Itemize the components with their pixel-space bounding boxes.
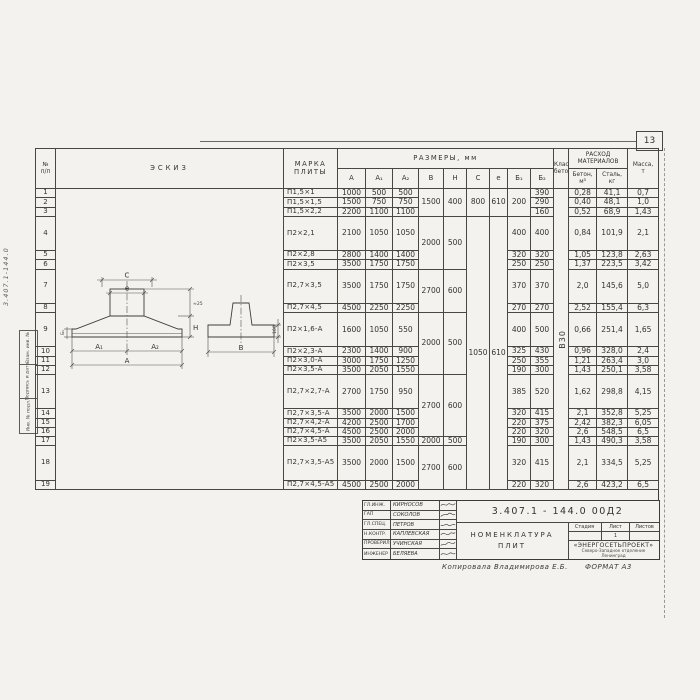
cell-num: 10 [36,347,56,356]
signature-mark [440,511,456,520]
cell-num: 1 [36,189,56,198]
cell-b2: 390 [531,189,554,198]
cell-e: 610 [490,216,508,489]
cell-a: 3500 [338,365,366,374]
cell-a: 4500 [338,427,366,436]
cell-steel: 68,9 [597,207,628,216]
signer-name: СОКОЛОВ [391,511,440,520]
col-header-c: С [467,169,490,189]
cell-a: 2700 [338,375,366,409]
cell-a: 1600 [338,313,366,347]
cell-a2: 1250 [393,356,419,365]
cell-b1: 320 [508,409,531,418]
dim-label-a1: А₁ [95,343,103,351]
cell-a2: 750 [393,198,419,207]
cell-b2: 430 [531,347,554,356]
cell-mark: П2,7×2,7-А [284,375,338,409]
cell-concrete: 0,96 [569,347,597,356]
cell-mark: П2×2,8 [284,251,338,260]
cell-b: 2700 [419,446,444,490]
cell-steel: 352,8 [597,409,628,418]
cell-a2: 1750 [393,260,419,269]
cell-b1: 190 [508,437,531,446]
signature-mark [440,530,456,539]
cell-a2: 1100 [393,207,419,216]
cell-a2: 2000 [393,480,419,489]
cell-a2: 1700 [393,418,419,427]
cell-num: 14 [36,409,56,418]
cell-steel: 48,1 [597,198,628,207]
dim-label-100: 100 [272,325,278,334]
cell-b: 2000 [419,437,444,446]
cell-mass: 2,1 [628,216,659,250]
cell-a1: 1400 [366,347,393,356]
cell-mark: П2×3,5-А5 [284,437,338,446]
cell-mass: 1,0 [628,198,659,207]
cell-mark: П2×3,5-А [284,365,338,374]
cell-a1: 1050 [366,216,393,250]
cell-a: 1500 [338,198,366,207]
cell-b1: 320 [508,446,531,480]
cell-a2: 1550 [393,365,419,374]
cell-mark: П2×2,3-А [284,347,338,356]
cell-b1: 220 [508,418,531,427]
cell-a1: 2000 [366,446,393,480]
cell-a1: 2500 [366,427,393,436]
cell-num: 16 [36,427,56,436]
signer-role: ГЛ.СПЕЦ. [363,520,391,529]
signature-table: ГЛ.ИНЖ. КИРНОСОВ ГАП СОКОЛОВ ГЛ.СПЕЦ. ПЕ… [363,501,457,559]
cell-concrete: 2,1 [569,446,597,480]
col-header-mark: МАРКА ПЛИТЫ [284,149,338,189]
cell-b1: 190 [508,365,531,374]
cell-a2: 1500 [393,409,419,418]
signer-role: Н.КОНТР. [363,530,391,539]
cell-steel: 41,1 [597,189,628,198]
cell-concrete: 1,21 [569,356,597,365]
stage-value [568,532,602,540]
cell-a1: 500 [366,189,393,198]
signature-row: ГЛ.ИНЖ. КИРНОСОВ [363,501,456,511]
cell-b2: 415 [531,409,554,418]
cell-e: 610 [490,189,508,217]
cell-b2: 375 [531,418,554,427]
cell-concrete: 0,52 [569,207,597,216]
format-note: ФОРМАТ А3 [585,563,632,571]
cell-a2: 900 [393,347,419,356]
cell-num: 17 [36,437,56,446]
fold-mark-line [664,148,665,618]
cell-num: 5 [36,251,56,260]
sheet-label: Лист [602,522,630,531]
cell-num: 12 [36,365,56,374]
cell-b2: 415 [531,446,554,480]
cell-a1: 2250 [366,303,393,312]
col-header-concrete-class: Класс бетона [554,149,569,189]
cell-h: 500 [444,313,467,375]
col-header-concrete: Бетон, м³ [569,169,597,189]
col-header-sketch: ЭСКИЗ [56,149,284,189]
col-header-b: В [419,169,444,189]
cell-b1: 220 [508,480,531,489]
sheets-value [630,532,659,540]
cell-b: 2000 [419,313,444,375]
signature-row: Н.КОНТР. КАПЛЕВСКАЯ [363,530,456,540]
cell-a2: 1550 [393,437,419,446]
cell-steel: 334,5 [597,446,628,480]
cell-mass: 6,05 [628,418,659,427]
cell-concrete: 2,0 [569,269,597,303]
cell-b1: 400 [508,216,531,250]
cell-b: 2700 [419,269,444,313]
cell-a1: 2000 [366,409,393,418]
cell-a1: 1100 [366,207,393,216]
cell-mass: 1,43 [628,207,659,216]
signature-mark [440,540,456,549]
cell-h: 600 [444,269,467,313]
cell-b1: 220 [508,427,531,436]
stage-sheet-header: Стадия Лист Листов [568,522,659,532]
cell-concrete: 1,37 [569,260,597,269]
cell-b2: 300 [531,365,554,374]
col-header-consumption: РАСХОД МАТЕРИАЛОВ [569,149,628,169]
copied-by-note: Копировала Владимирова Е.Б. [442,563,568,571]
table-row: 1 С [36,189,659,198]
col-header-h: Н [444,169,467,189]
cell-b1: 250 [508,356,531,365]
cell-h: 600 [444,375,467,437]
cell-b: 2700 [419,375,444,437]
cell-a2: 950 [393,375,419,409]
col-header-e: е [490,169,508,189]
cell-b2: 250 [531,260,554,269]
cell-mass: 5,25 [628,446,659,480]
cell-a1: 2500 [366,418,393,427]
cell-num: 9 [36,313,56,347]
cell-mass: 6,5 [628,427,659,436]
cell-c: 1050 [467,216,490,489]
sheet-number: 13 [644,136,655,146]
cell-concrete: 2,6 [569,427,597,436]
signature-row: ГАП СОКОЛОВ [363,511,456,521]
cell-mark: П1,5×2,2 [284,207,338,216]
cell-num: 15 [36,418,56,427]
cell-a: 3500 [338,446,366,480]
cell-b1: 400 [508,313,531,347]
cell-b2: 160 [531,207,554,216]
cell-b2: 520 [531,375,554,409]
cell-steel: 223,5 [597,260,628,269]
cell-a: 2200 [338,207,366,216]
cell-a2: 1400 [393,251,419,260]
cell-mark: П2×1,6-А [284,313,338,347]
signature-row: ИНЖЕНЕР БЕЛЯЕВА [363,549,456,559]
drawing-title: НОМЕНКЛАТУРА ПЛИТ [456,522,569,559]
cell-mark: П2×2,1 [284,216,338,250]
cell-a: 3000 [338,356,366,365]
sheet-frame-top-line [200,141,658,142]
cell-num: 18 [36,446,56,480]
cell-steel: 251,4 [597,313,628,347]
col-header-b2: Б₂ [531,169,554,189]
cell-num: 2 [36,198,56,207]
cell-a1: 1750 [366,375,393,409]
cell-a2: 1050 [393,216,419,250]
stage-sheet-values: 1 [568,532,659,541]
dim-label-b: В [239,344,244,352]
cell-concrete: 0,28 [569,189,597,198]
cell-a: 1000 [338,189,366,198]
cell-concrete: 0,84 [569,216,597,250]
cell-b2: 290 [531,198,554,207]
cell-a2: 2000 [393,427,419,436]
cell-steel: 145,6 [597,269,628,303]
margin-doc-number: 3.407.1-144.0 [2,222,17,332]
dim-label-a2: А₂ [151,343,159,351]
cell-mass: 2,4 [628,347,659,356]
cell-a1: 1050 [366,313,393,347]
cell-b: 1500 [419,189,444,217]
cell-h: 500 [444,216,467,269]
cell-mass: 4,15 [628,375,659,409]
cell-steel: 263,4 [597,356,628,365]
cell-a: 3500 [338,409,366,418]
cell-concrete: 2,52 [569,303,597,312]
cell-mass: 5,0 [628,269,659,303]
cell-a1: 750 [366,198,393,207]
cell-b2: 320 [531,251,554,260]
col-header-a2: А₂ [393,169,419,189]
cell-a1: 1750 [366,269,393,303]
cell-concrete: 1,43 [569,365,597,374]
cell-steel: 250,1 [597,365,628,374]
cell-steel: 328,0 [597,347,628,356]
cell-a: 4500 [338,480,366,489]
cell-a2: 500 [393,189,419,198]
cell-a2: 550 [393,313,419,347]
cell-num: 8 [36,303,56,312]
drawing-sheet: 13 3.407.1-144.0 Взам. инв. № Подпись и … [0,0,700,700]
nomenclature-table: № п/п ЭСКИЗ МАРКА ПЛИТЫ РАЗМЕРЫ, мм Клас… [35,148,659,490]
cell-mass: 1,65 [628,313,659,347]
cell-mark: П2×3,5 [284,260,338,269]
cell-b: 2000 [419,216,444,269]
document-number: 3.407.1 - 144.0 00Д2 [456,501,659,523]
organization-block: «ЭНЕРГОСЕТЬПРОЕКТ» Северо-Западное отдел… [568,541,659,560]
cell-mass: 2,63 [628,251,659,260]
cell-b2: 400 [531,216,554,250]
cell-b2: 355 [531,356,554,365]
cell-a2: 2250 [393,303,419,312]
cell-mark: П2,7×4,5 [284,303,338,312]
cell-mass: 5,25 [628,409,659,418]
cell-b1: 370 [508,269,531,303]
cell-steel: 382,3 [597,418,628,427]
cell-mass: 3,58 [628,437,659,446]
cell-mark: П2,7×3,5 [284,269,338,303]
cell-b1: 320 [508,251,531,260]
cell-a1: 2050 [366,437,393,446]
cell-num: 19 [36,480,56,489]
cell-mark: П2,7×3,5-А5 [284,446,338,480]
cell-steel: 548,5 [597,427,628,436]
cell-a1: 1750 [366,260,393,269]
signer-role: ГАП [363,511,391,520]
dim-label-e: е [125,285,129,293]
title-block-right: Стадия Лист Листов 1 «ЭНЕРГОСЕТЬПРОЕКТ» … [568,522,659,559]
cell-b2: 320 [531,480,554,489]
cell-b2: 320 [531,427,554,436]
cell-a: 4500 [338,303,366,312]
signer-name: БЕЛЯЕВА [391,549,440,559]
col-header-dimensions: РАЗМЕРЫ, мм [338,149,554,169]
cell-num: 11 [36,356,56,365]
dim-label-h: Н [193,324,198,332]
cell-b1: 385 [508,375,531,409]
cell-c: 800 [467,189,490,217]
cell-mass: 0,7 [628,189,659,198]
dim-label-pedestal: ≈25 [193,301,203,307]
cell-mass: 6,5 [628,480,659,489]
sheet-value: 1 [602,532,630,540]
cell-a1: 1400 [366,251,393,260]
signer-role: ИНЖЕНЕР [363,549,391,559]
cell-concrete: 1,62 [569,375,597,409]
cell-a2: 1500 [393,446,419,480]
cell-a1: 1750 [366,356,393,365]
sheets-label: Листов [630,522,659,531]
cell-a2: 1750 [393,269,419,303]
cell-b2: 270 [531,303,554,312]
title-block: ГЛ.ИНЖ. КИРНОСОВ ГАП СОКОЛОВ ГЛ.СПЕЦ. ПЕ… [362,500,660,560]
signer-name: КАПЛЕВСКАЯ [391,530,440,539]
signer-name: КИРНОСОВ [391,501,440,510]
signature-mark [440,501,456,510]
cell-steel: 123,8 [597,251,628,260]
concrete-class-cell: В30 [554,189,569,490]
cell-concrete: 1,05 [569,251,597,260]
cell-b1: 270 [508,303,531,312]
dim-label-b1-small: Б₁ [60,330,66,335]
cell-a1: 2500 [366,480,393,489]
col-header-a: А [338,169,366,189]
stage-label: Стадия [568,522,602,531]
cell-b1: 325 [508,347,531,356]
sketch-cell: С е А₁ А₂ [56,189,284,490]
cell-mass: 3,58 [628,365,659,374]
cell-mark: П2,7×4,2-А [284,418,338,427]
cell-a1: 2050 [366,365,393,374]
cell-b1: 250 [508,260,531,269]
signer-role: ПРОВЕРИЛ [363,540,391,549]
cell-a: 4200 [338,418,366,427]
cell-concrete: 0,66 [569,313,597,347]
cell-h: 600 [444,446,467,490]
cell-mark: П2,7×3,5-А [284,409,338,418]
signature-row: ПРОВЕРИЛ УЧИНСКАЯ [363,540,456,550]
col-header-num: № п/п [36,149,56,189]
cell-h: 400 [444,189,467,217]
cell-b1: 200 [508,189,531,217]
col-header-a1: А₁ [366,169,393,189]
cell-mark: П2,7×4,5-А [284,427,338,436]
cell-steel: 155,4 [597,303,628,312]
cell-h: 500 [444,437,467,446]
signature-mark [440,520,456,529]
signature-row: ГЛ.СПЕЦ. ПЕТРОВ [363,520,456,530]
dim-label-a: А [125,357,130,365]
cell-num: 7 [36,269,56,303]
col-header-b1: Б₁ [508,169,531,189]
col-header-mass: Масса, т [628,149,659,189]
cell-a: 2800 [338,251,366,260]
cell-mark: П1,5×1,5 [284,198,338,207]
cell-concrete: 1,43 [569,437,597,446]
signer-role: ГЛ.ИНЖ. [363,501,391,510]
cell-concrete: 2,6 [569,480,597,489]
cell-concrete: 2,42 [569,418,597,427]
cell-a: 2300 [338,347,366,356]
cell-mass: 6,3 [628,303,659,312]
cell-concrete: 0,40 [569,198,597,207]
cell-b2: 300 [531,437,554,446]
header-row-groups: № п/п ЭСКИЗ МАРКА ПЛИТЫ РАЗМЕРЫ, мм Клас… [36,149,659,169]
organization-city: Ленинград [601,554,625,559]
cell-num: 13 [36,375,56,409]
signature-mark [440,549,456,559]
dim-label-c: С [125,272,130,280]
signer-name: УЧИНСКАЯ [391,540,440,549]
cell-b2: 500 [531,313,554,347]
cell-b2: 370 [531,269,554,303]
cell-a: 3500 [338,437,366,446]
cell-steel: 423,2 [597,480,628,489]
cell-a: 2100 [338,216,366,250]
cell-mass: 3,0 [628,356,659,365]
cell-num: 6 [36,260,56,269]
plate-sketch-drawing: С е А₁ А₂ [56,189,282,489]
cell-a: 3500 [338,269,366,303]
cell-mass: 3,42 [628,260,659,269]
signer-name: ПЕТРОВ [391,520,440,529]
cell-num: 3 [36,207,56,216]
cell-mark: П2×3,0-А [284,356,338,365]
cell-num: 4 [36,216,56,250]
cell-steel: 298,8 [597,375,628,409]
cell-steel: 490,3 [597,437,628,446]
cell-mark: П2,7×4,5-А5 [284,480,338,489]
cell-a: 3500 [338,260,366,269]
cell-mark: П1,5×1 [284,189,338,198]
cell-steel: 101,9 [597,216,628,250]
cell-concrete: 2,1 [569,409,597,418]
col-header-steel: Сталь, кг [597,169,628,189]
